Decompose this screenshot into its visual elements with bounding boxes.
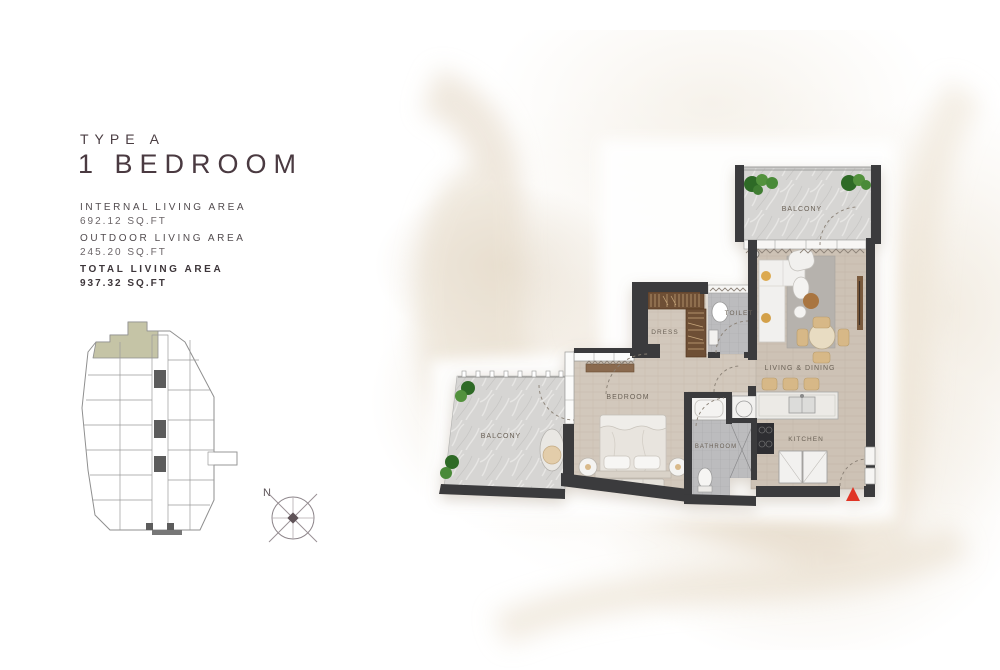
bar-stool [762, 378, 777, 390]
keyplan-unit-highlight [93, 322, 158, 358]
dining-chair [813, 352, 830, 363]
coffee-table [803, 293, 819, 309]
room-label-kitchen: KITCHEN [788, 436, 824, 443]
bedroom-window-left [565, 352, 574, 424]
plan-canvas: BALCONY LIVING & DINING DRESS TOILET BED… [0, 0, 1000, 670]
bar-stool [804, 378, 819, 390]
room-label-bedroom: BEDROOM [606, 394, 649, 401]
dining-chair [797, 329, 808, 346]
bedroom-dresser [586, 364, 634, 372]
room-label-bathroom: BATHROOM [695, 444, 737, 450]
room-label-balcony-bottom: BALCONY [481, 433, 521, 440]
bed-pillow [604, 456, 630, 469]
coffee-table [794, 306, 806, 318]
toilet-sink [709, 330, 718, 345]
compass-icon [269, 494, 317, 542]
bathtub [691, 397, 727, 420]
room-label-living-dining: LIVING & DINING [764, 365, 835, 372]
room-label-toilet: TOILET [725, 310, 754, 317]
balcony-lounger [540, 429, 564, 471]
bed-pillow [634, 456, 660, 469]
toilet-fixture [698, 468, 712, 488]
dining-chair [838, 329, 849, 346]
floorplan-brochure-page: { "panel": { "type_label": "TYPE A", "ti… [0, 0, 1000, 670]
dining-chair [813, 317, 830, 328]
living-window-band [744, 240, 866, 249]
sofa-cushion [761, 271, 771, 281]
bar-stool [783, 378, 798, 390]
room-label-balcony-top: BALCONY [782, 206, 822, 213]
keyplan [82, 322, 237, 535]
room-label-dress: DRESS [651, 329, 678, 336]
sofa-cushion [761, 313, 771, 323]
headboard [595, 471, 671, 478]
